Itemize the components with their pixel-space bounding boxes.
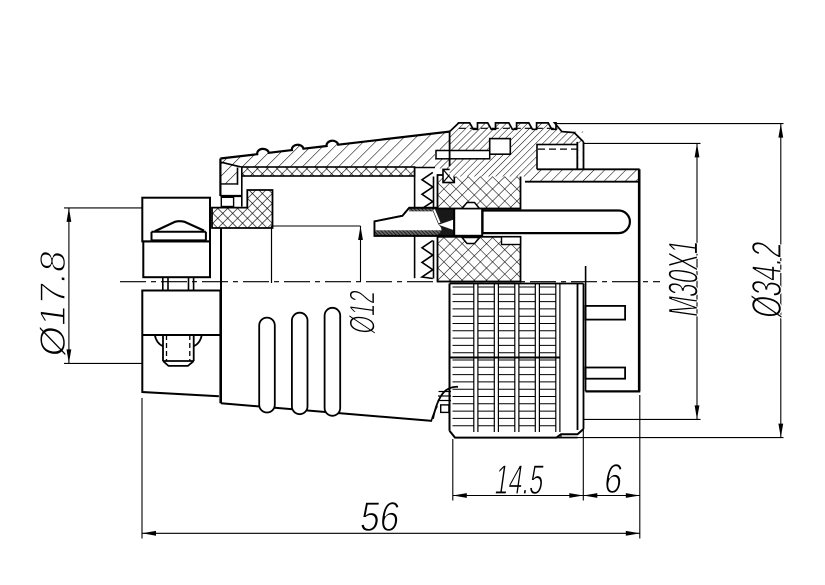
svg-text:Ø12: Ø12 [342,287,383,336]
svg-text:Ø17.8: Ø17.8 [32,247,73,359]
svg-text:Ø34.2: Ø34.2 [743,238,790,321]
svg-text:14.5: 14.5 [492,456,547,503]
svg-text:M30X1: M30X1 [660,237,707,320]
svg-text:56: 56 [357,493,403,540]
